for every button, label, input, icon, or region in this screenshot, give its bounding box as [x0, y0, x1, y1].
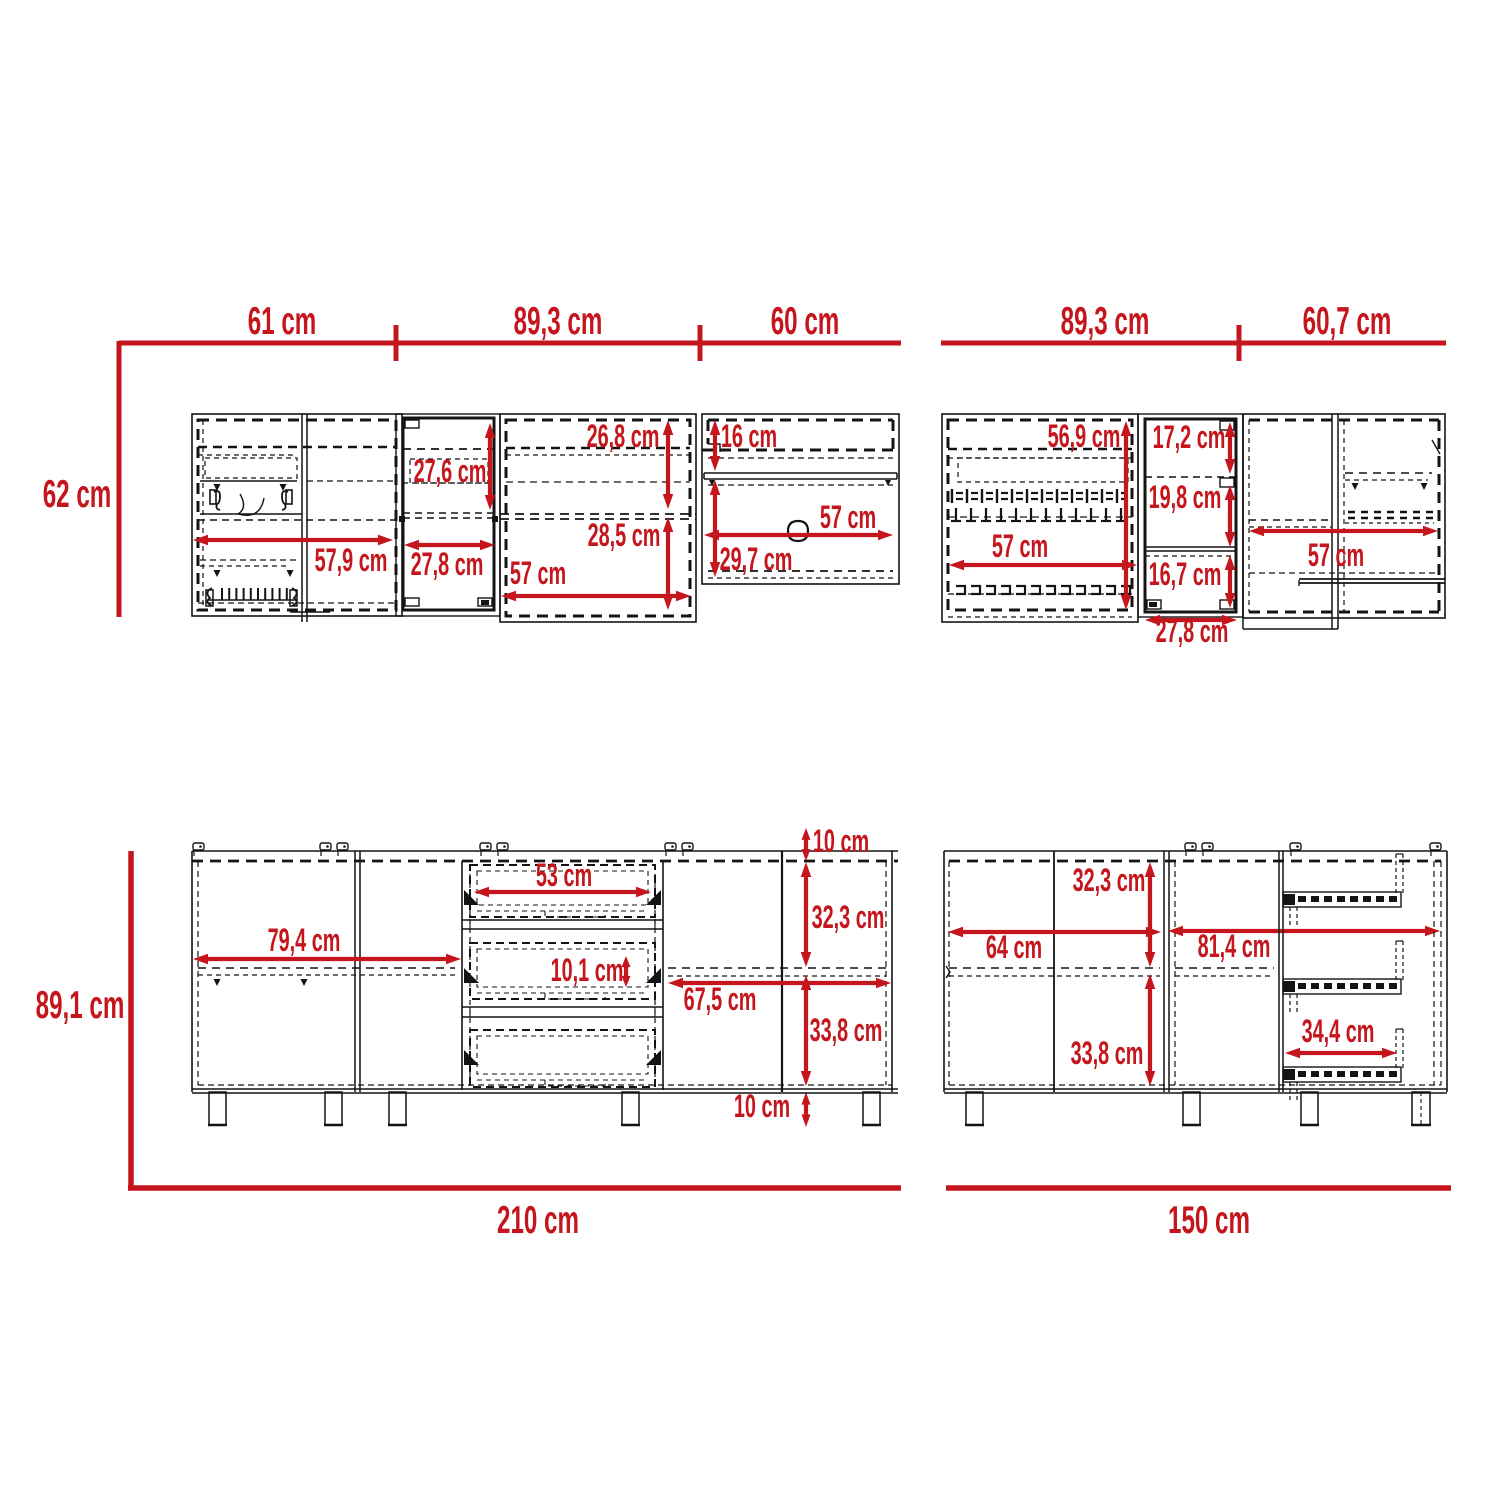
svg-text:57,9 cm: 57,9 cm: [315, 542, 388, 578]
svg-text:16 cm: 16 cm: [721, 418, 777, 454]
svg-text:32,3 cm: 32,3 cm: [1073, 862, 1146, 898]
svg-text:17,2 cm: 17,2 cm: [1153, 419, 1226, 455]
svg-text:27,6 cm: 27,6 cm: [414, 453, 487, 489]
svg-text:67,5 cm: 67,5 cm: [684, 981, 757, 1017]
svg-text:19,8 cm: 19,8 cm: [1149, 479, 1222, 515]
svg-text:81,4 cm: 81,4 cm: [1198, 928, 1271, 964]
svg-text:10 cm: 10 cm: [813, 823, 869, 859]
svg-text:150 cm: 150 cm: [1168, 1198, 1250, 1241]
svg-text:57 cm: 57 cm: [992, 528, 1048, 564]
svg-text:33,8 cm: 33,8 cm: [1071, 1035, 1144, 1071]
svg-text:57 cm: 57 cm: [1308, 537, 1364, 573]
svg-text:28,5 cm: 28,5 cm: [588, 517, 661, 553]
svg-text:16,7 cm: 16,7 cm: [1149, 556, 1222, 592]
svg-text:89,1 cm: 89,1 cm: [36, 983, 125, 1026]
svg-text:33,8 cm: 33,8 cm: [810, 1012, 883, 1048]
svg-text:64 cm: 64 cm: [986, 929, 1042, 965]
svg-text:26,8 cm: 26,8 cm: [587, 418, 660, 454]
svg-text:27,8 cm: 27,8 cm: [411, 546, 484, 582]
svg-text:27,8 cm: 27,8 cm: [1156, 613, 1229, 649]
svg-text:210 cm: 210 cm: [497, 1198, 579, 1241]
svg-text:89,3 cm: 89,3 cm: [514, 299, 603, 342]
svg-text:57 cm: 57 cm: [820, 499, 876, 535]
svg-text:62 cm: 62 cm: [43, 472, 112, 515]
svg-text:29,7 cm: 29,7 cm: [720, 541, 793, 577]
svg-text:53 cm: 53 cm: [536, 857, 592, 893]
svg-text:34,4 cm: 34,4 cm: [1302, 1013, 1375, 1049]
svg-text:57 cm: 57 cm: [510, 555, 566, 591]
svg-text:32,3 cm: 32,3 cm: [812, 899, 885, 935]
svg-text:60 cm: 60 cm: [771, 299, 840, 342]
svg-text:79,4 cm: 79,4 cm: [268, 922, 341, 958]
svg-text:10,1 cm: 10,1 cm: [551, 952, 624, 988]
svg-text:56,9 cm: 56,9 cm: [1048, 418, 1121, 454]
svg-text:60,7 cm: 60,7 cm: [1303, 299, 1392, 342]
svg-text:61 cm: 61 cm: [248, 299, 317, 342]
svg-text:89,3 cm: 89,3 cm: [1061, 299, 1150, 342]
